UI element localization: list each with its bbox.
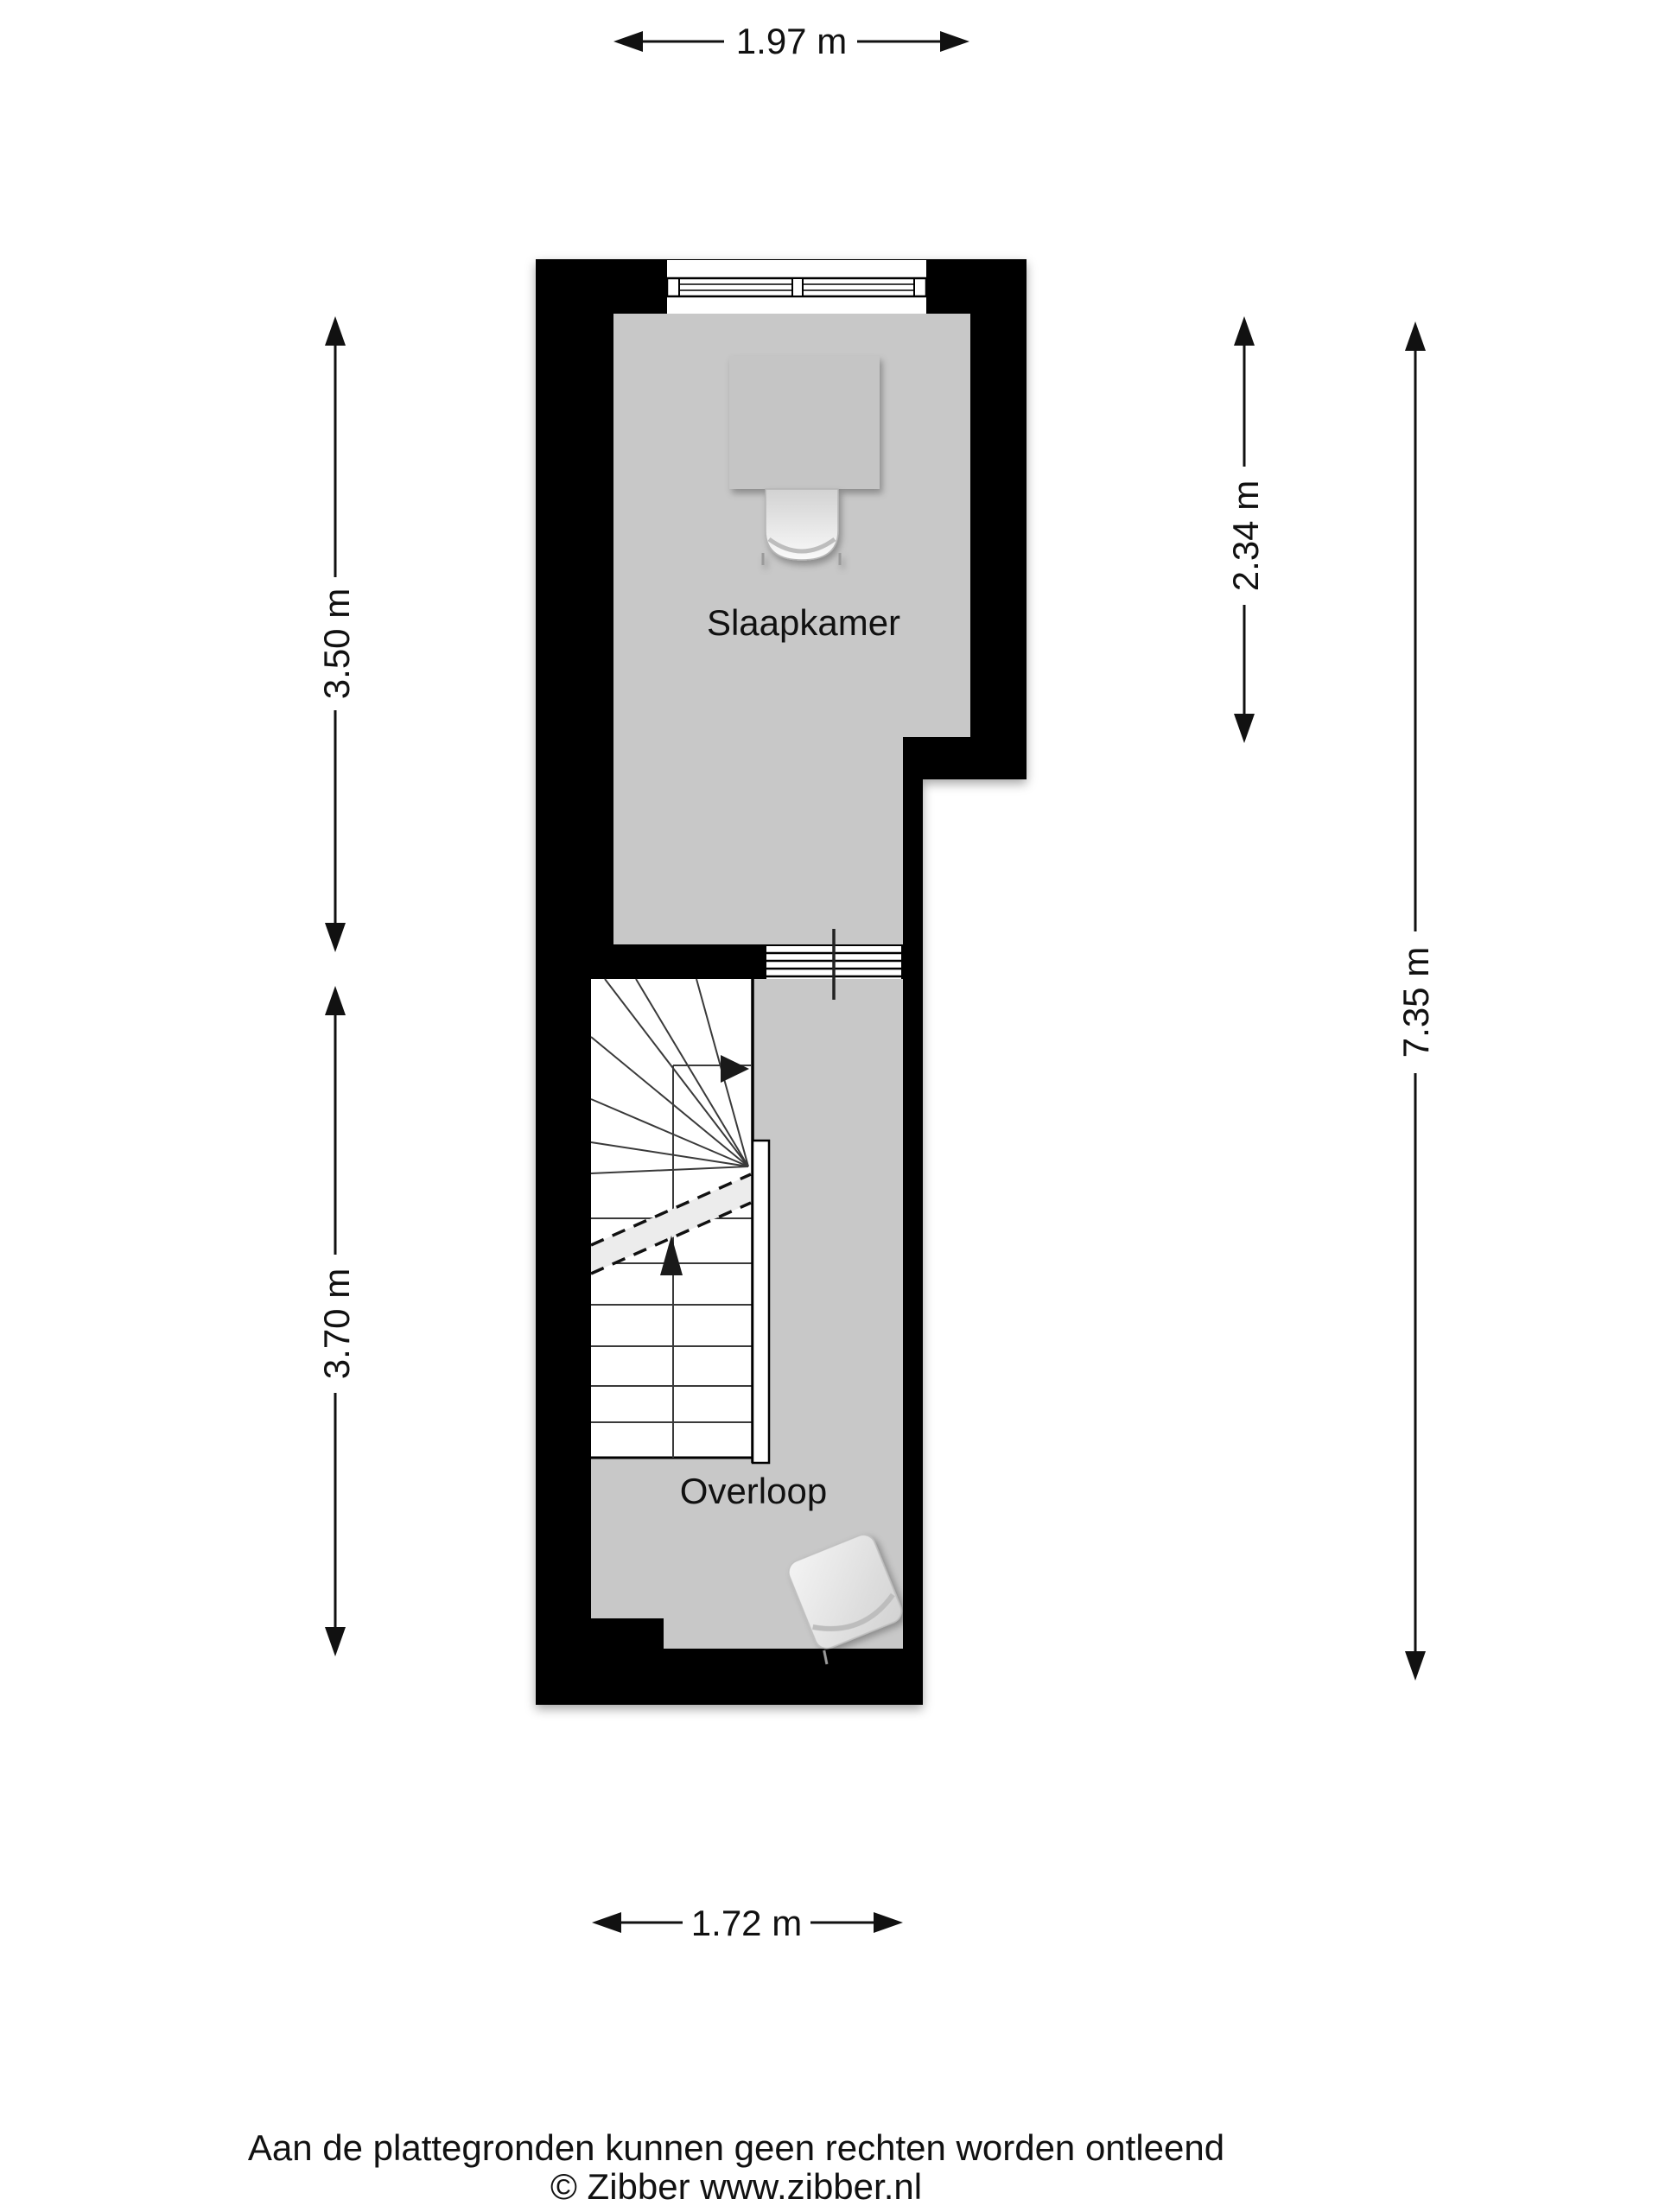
dim-right-total: 7.35 m [1395,321,1436,1681]
arrow-down-icon [325,923,346,952]
arrow-left-icon [613,31,643,52]
floorplan-page: Slaapkamer Overloop 1.97 m 3.50 m 3.70 m [0,0,1659,2212]
arrow-down-icon [325,1627,346,1656]
arrow-up-icon [325,316,346,346]
dim-top-width: 1.97 m [613,21,969,61]
dim-bottom-width-label: 1.72 m [691,1903,802,1943]
stair-balustrade [753,1141,769,1463]
arrow-down-icon [1234,714,1255,743]
room-label-slaapkamer: Slaapkamer [707,602,900,643]
arrow-right-icon [874,1912,903,1933]
window-icon [667,260,926,314]
dim-top-width-label: 1.97 m [736,21,847,61]
dim-right-upper-label: 2.34 m [1225,480,1266,591]
footer-disclaimer: Aan de plattegronden kunnen geen rechten… [248,2127,1224,2168]
arrow-up-icon [1405,321,1426,351]
window-mullion [792,278,803,296]
room-label-overloop: Overloop [680,1471,827,1511]
dim-left-upper-label: 3.50 m [316,588,357,699]
arrow-down-icon [1405,1651,1426,1681]
arrow-left-icon [592,1912,621,1933]
dim-right-total-label: 7.35 m [1395,947,1436,1058]
footer: Aan de plattegronden kunnen geen rechten… [248,2127,1224,2207]
dim-right-upper: 2.34 m [1225,316,1266,743]
arrow-up-icon [325,986,346,1015]
dim-left-lower-label: 3.70 m [316,1268,357,1379]
dim-left-upper: 3.50 m [316,316,357,952]
footer-copyright: © Zibber www.zibber.nl [550,2166,922,2207]
desk-icon [729,356,880,489]
staircase-icon [591,979,769,1463]
arrow-up-icon [1234,316,1255,346]
arrow-right-icon [940,31,969,52]
dim-left-lower: 3.70 m [316,986,357,1656]
dim-bottom-width: 1.72 m [592,1903,903,1943]
floorplan-drawing: Slaapkamer Overloop 1.97 m 3.50 m 3.70 m [0,0,1659,2212]
